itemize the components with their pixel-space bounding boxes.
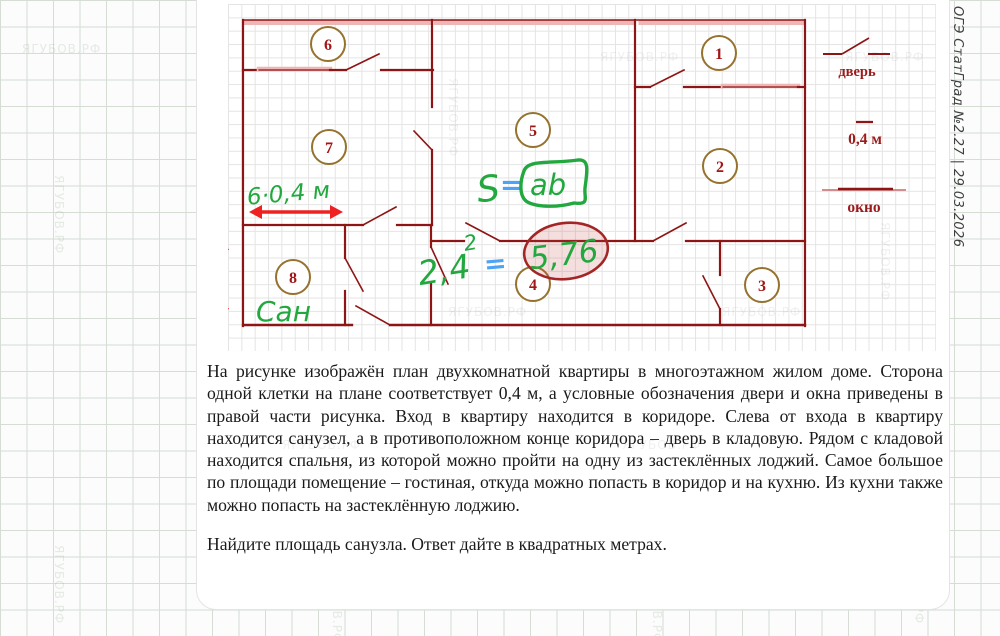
room-number: 1 xyxy=(715,46,723,63)
legend-scale-label: 0,4 м xyxy=(848,131,882,148)
floor-plan: 1 2 3 4 5 6 7 xyxy=(228,4,940,350)
problem-paragraph: На рисунке изображён план двухкомнатной … xyxy=(207,360,943,516)
page-background: ЯГУБОВ.РФ ЯГУБОВ.РФ ЯГУБОВ.РФ ЯГУБОВ.РФ … xyxy=(0,0,1000,636)
san-label: Сан xyxy=(256,295,311,328)
calc-base: 2,4 xyxy=(415,246,473,293)
watermark: ЯГУБОВ.РФ xyxy=(52,175,66,254)
source-caption: ОГЭ СтатГрад №2.27 | 29.03.2026 xyxy=(950,6,965,306)
room-marker-6: 6 xyxy=(311,27,345,61)
legend-window-label: окно xyxy=(847,199,881,216)
door-symbol-icon xyxy=(823,38,890,54)
width-annotation: 6·0,4 м xyxy=(246,178,331,211)
room-number: 7 xyxy=(325,140,333,157)
room-marker-7: 7 xyxy=(312,130,346,164)
watermark: ЯГУБОВ.РФ xyxy=(22,42,101,56)
room-number: 4 xyxy=(529,277,537,294)
room-marker-3: 3 xyxy=(745,268,779,302)
height-arrow xyxy=(228,237,229,321)
legend-door-label: дверь xyxy=(838,64,876,80)
room-number: 5 xyxy=(529,123,537,140)
room-marker-5: 5 xyxy=(516,113,550,147)
formula-s: S xyxy=(475,168,502,211)
watermark: ЯГУБОВ.РФ xyxy=(52,545,66,624)
calc-exponent: 2 xyxy=(462,230,479,256)
room-number: 2 xyxy=(716,159,724,176)
calc-equals: = xyxy=(483,248,508,281)
formula-ab: ab xyxy=(530,168,566,202)
room-number: 3 xyxy=(758,278,766,295)
handwritten-annotations: 6·0,4 м 6 · 0,4 Сан S = ab 2,4 2 = 5,76 xyxy=(228,160,611,328)
room-marker-1: 1 xyxy=(702,36,736,70)
room-marker-8: 8 xyxy=(276,260,310,294)
problem-question: Найдите площадь санузла. Ответ дайте в к… xyxy=(207,533,943,555)
room-marker-2: 2 xyxy=(703,149,737,183)
room-number: 8 xyxy=(289,270,297,287)
room-number: 6 xyxy=(324,37,332,54)
problem-text-block: На рисунке изображён план двухкомнатной … xyxy=(207,360,943,555)
window-symbol-icon xyxy=(822,189,906,190)
legend: дверь 0,4 м окно xyxy=(822,38,906,216)
